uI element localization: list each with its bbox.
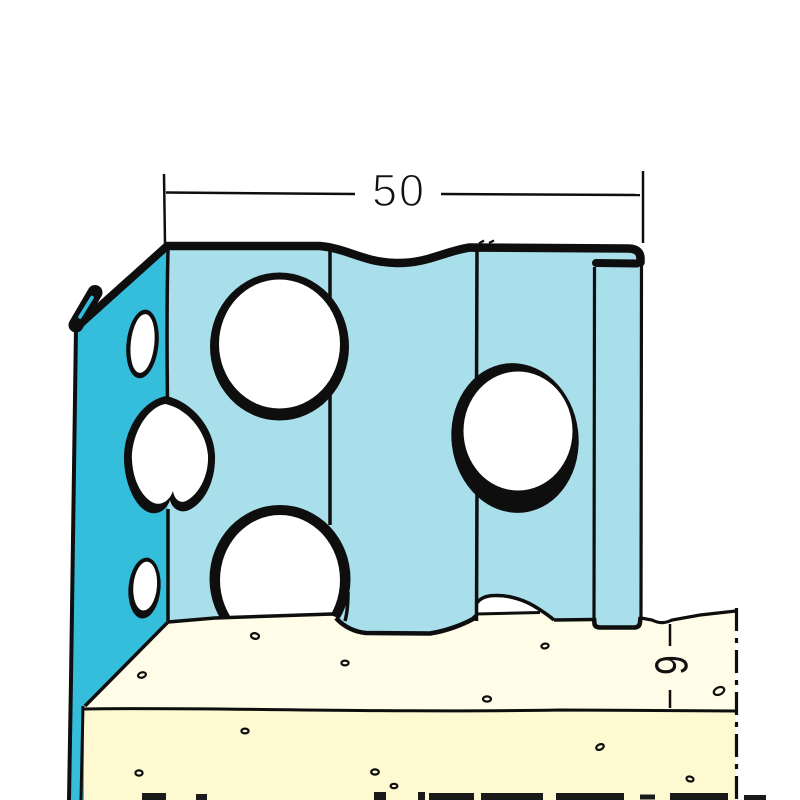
svg-text:6: 6 [645,655,696,675]
svg-text:50: 50 [372,165,426,216]
